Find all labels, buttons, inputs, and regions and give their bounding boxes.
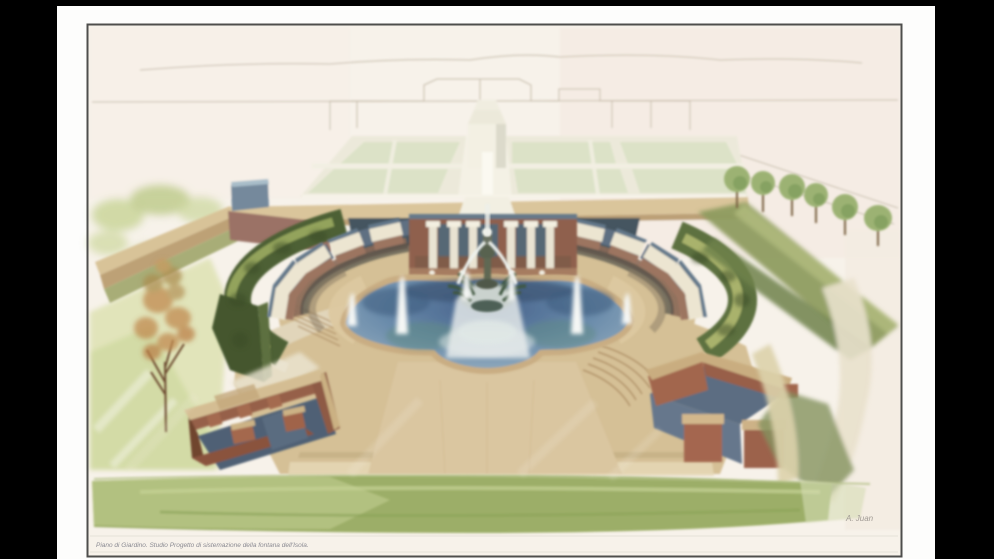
- svg-text:Piano di Giardino. Studio Prog: Piano di Giardino. Studio Progetto di si…: [96, 542, 309, 549]
- svg-text:A. Juan: A. Juan: [845, 514, 874, 523]
